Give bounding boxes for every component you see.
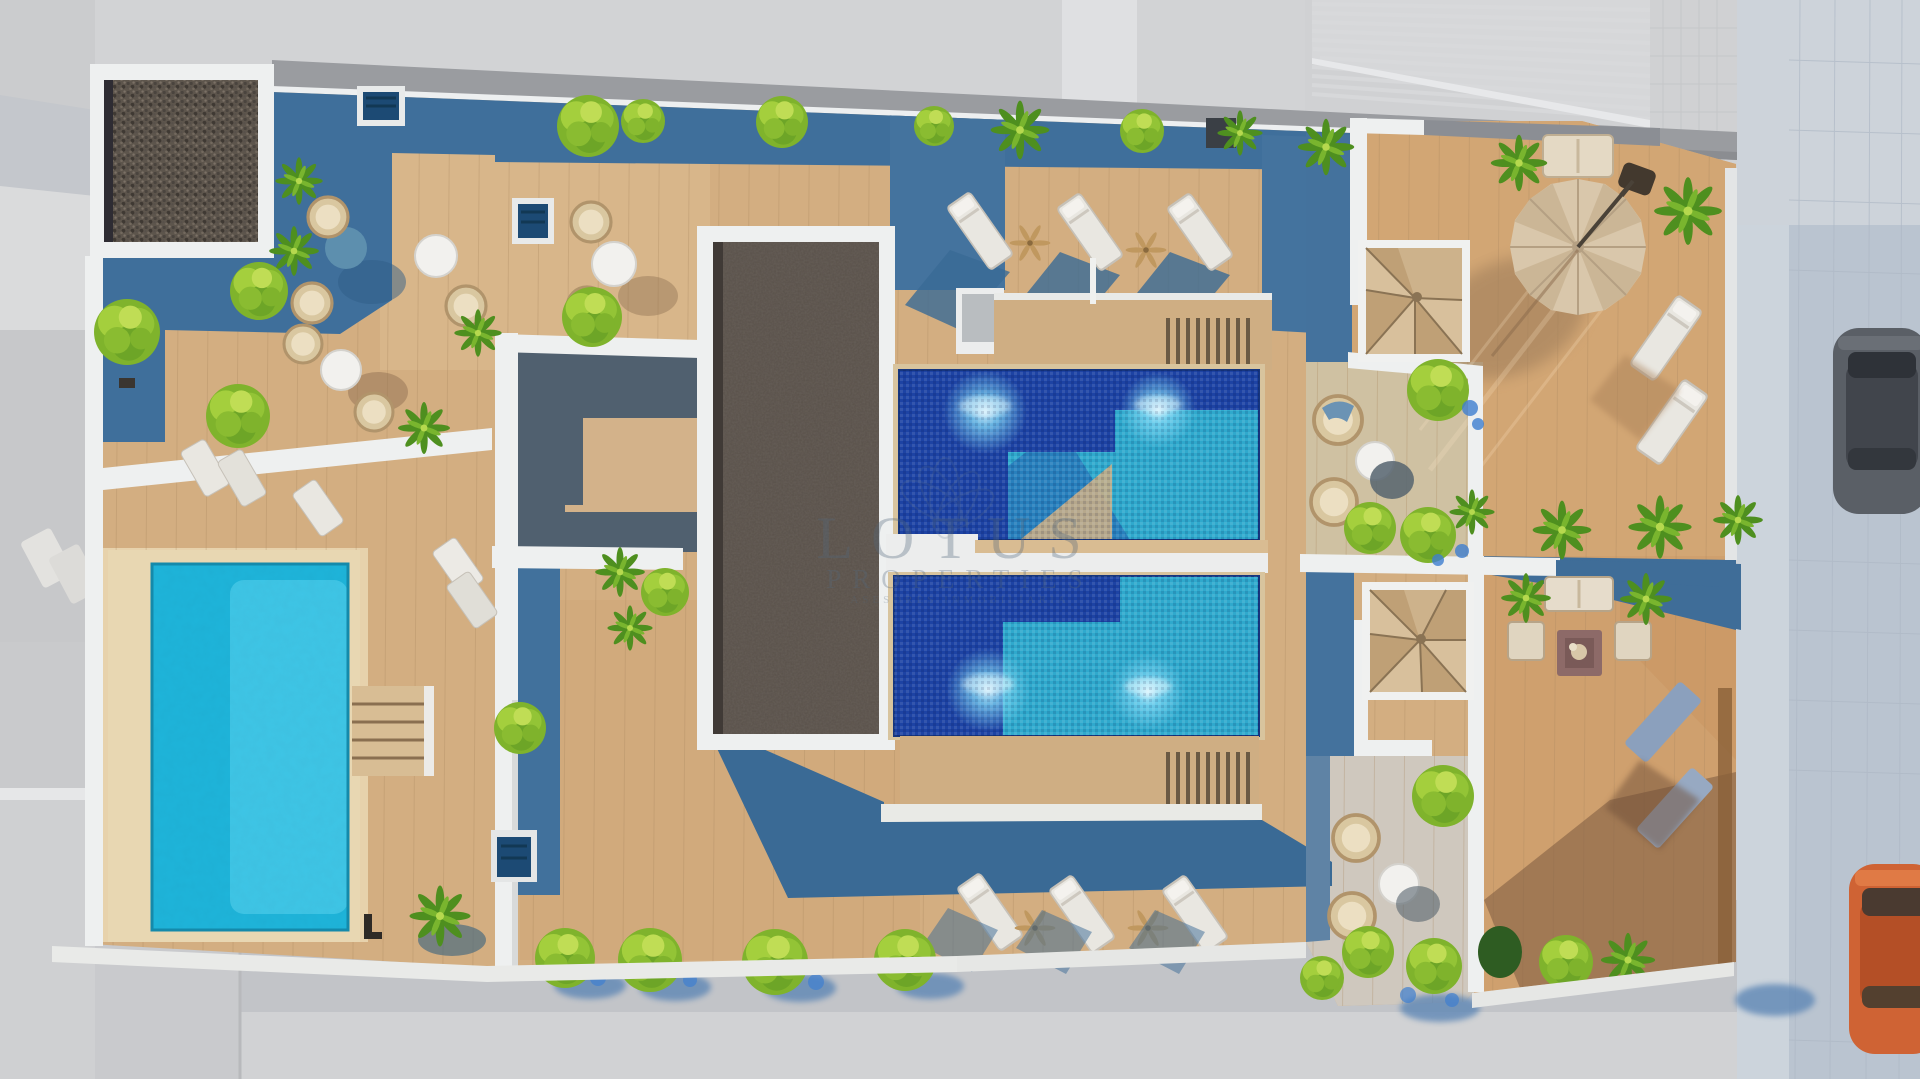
- svg-text:LOTUS: LOTUS: [816, 505, 1099, 571]
- svg-text:PROPERTIES: PROPERTIES: [826, 564, 1093, 594]
- svg-text:ASESORES INMOBILIARIA: ASESORES INMOBILIARIA: [850, 594, 1069, 606]
